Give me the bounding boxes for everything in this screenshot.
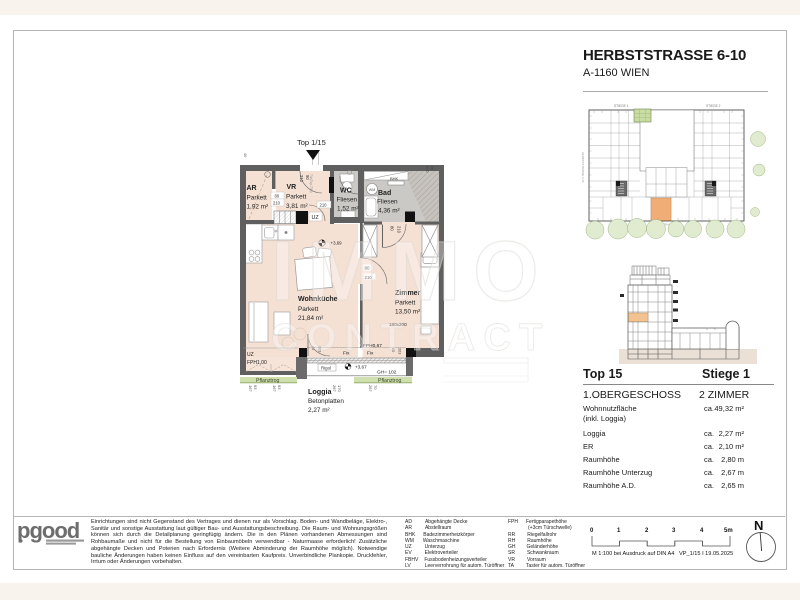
svg-text:VR: VR <box>287 184 297 191</box>
svg-text:UZ: UZ <box>312 215 320 221</box>
svg-text:GH= 102: GH= 102 <box>377 370 397 376</box>
svg-text:1: 1 <box>617 528 621 534</box>
svg-text:Parkett: Parkett <box>286 194 306 201</box>
svg-text:STIEGE 1: STIEGE 1 <box>614 104 629 108</box>
svg-text:60: 60 <box>430 166 434 170</box>
svg-text:210: 210 <box>273 200 281 205</box>
svg-text:167: 167 <box>248 385 253 392</box>
svg-text:267: 267 <box>368 385 373 392</box>
svg-text:CONTRACT: CONTRACT <box>271 317 551 359</box>
svg-text:0: 0 <box>590 528 594 534</box>
svg-text:3,81 m²: 3,81 m² <box>286 203 308 210</box>
svg-text:2,27 m²: 2,27 m² <box>308 407 330 414</box>
svg-text:UZ: UZ <box>247 352 254 358</box>
svg-text:Pflanztrog: Pflanztrog <box>378 378 401 384</box>
svg-text:WM: WM <box>369 188 375 192</box>
svg-text:BHK: BHK <box>390 176 399 181</box>
svg-text:40: 40 <box>243 153 247 157</box>
svg-text:210: 210 <box>299 175 304 183</box>
svg-text:Loggia: Loggia <box>308 387 333 396</box>
svg-text:N: N <box>754 518 763 533</box>
svg-text:167: 167 <box>272 385 277 392</box>
svg-text:Pflanztrog: Pflanztrog <box>256 378 279 384</box>
svg-text:STIEGE 2: STIEGE 2 <box>706 104 721 108</box>
svg-text:Bad: Bad <box>378 190 391 197</box>
svg-text:2: 2 <box>645 528 649 534</box>
svg-text:3: 3 <box>672 528 676 534</box>
svg-text:90: 90 <box>305 175 310 180</box>
svg-text:+3,67: +3,67 <box>355 365 367 370</box>
svg-text:Fliesen: Fliesen <box>377 199 398 206</box>
svg-text:HERBSTSTRASSE 6-10: HERBSTSTRASSE 6-10 <box>581 152 585 183</box>
svg-text:210: 210 <box>320 202 328 207</box>
svg-text:4,36 m²: 4,36 m² <box>378 208 400 215</box>
svg-text:AR: AR <box>247 185 257 192</box>
svg-text:1,92 m²: 1,92 m² <box>247 204 269 211</box>
svg-text:267: 267 <box>332 385 337 392</box>
svg-text:Fliesen: Fliesen <box>337 197 358 204</box>
svg-text:Rigol: Rigol <box>321 365 331 370</box>
svg-text:WC: WC <box>340 188 352 195</box>
svg-text:Top 1/15: Top 1/15 <box>297 138 326 147</box>
svg-text:4: 4 <box>700 528 704 534</box>
svg-text:Parkett: Parkett <box>247 195 267 202</box>
svg-text:FPH1,00: FPH1,00 <box>247 360 267 366</box>
svg-text:80: 80 <box>275 193 280 198</box>
svg-text:1,52 m²: 1,52 m² <box>337 206 359 213</box>
svg-text:Betonplatten: Betonplatten <box>308 398 344 405</box>
svg-text:210: 210 <box>425 166 429 172</box>
svg-text:IMMO: IMMO <box>271 224 552 318</box>
svg-text:5m: 5m <box>724 528 733 534</box>
